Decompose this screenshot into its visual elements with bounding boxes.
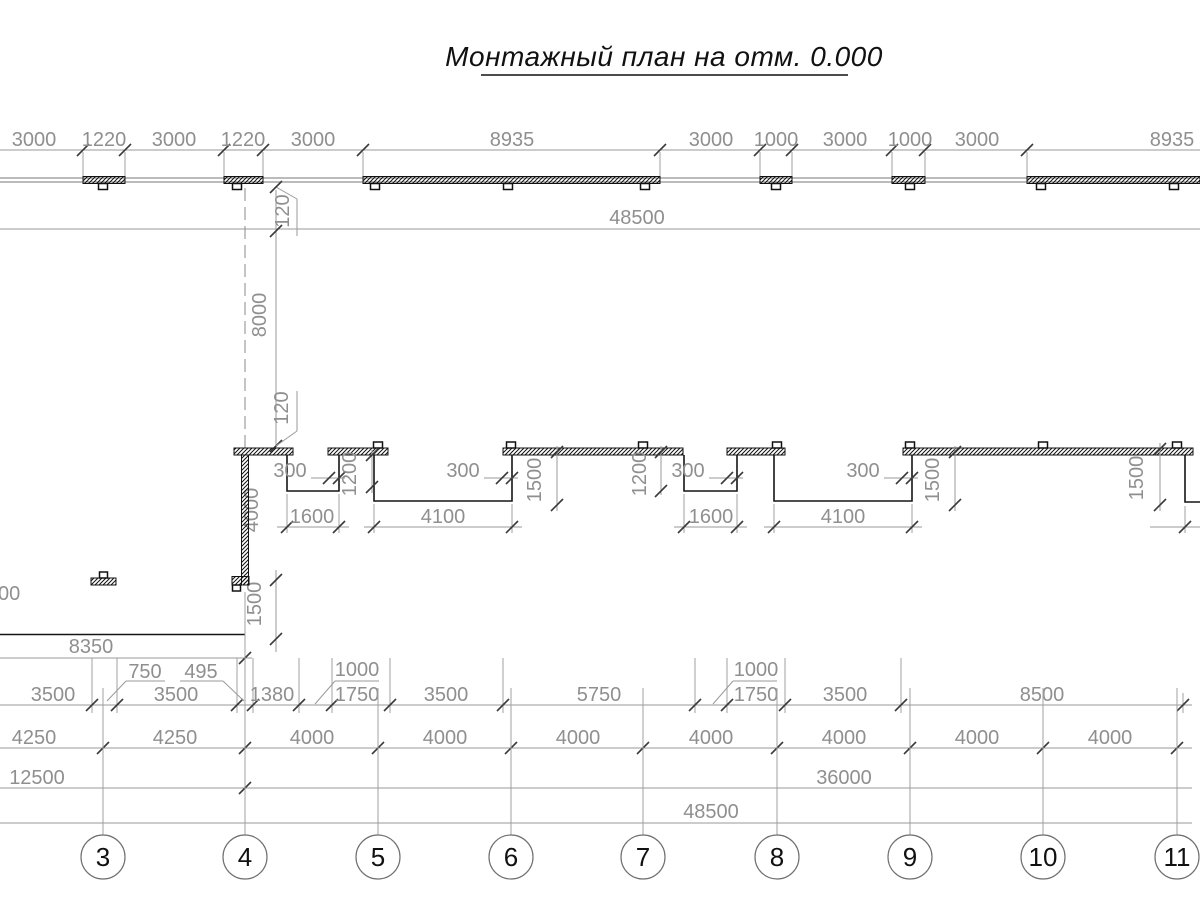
dim-label: 4000 — [822, 727, 867, 749]
dim-label: 3000 — [12, 129, 57, 151]
plan-drawing: Монтажный план на отм. 0.000 3000 1220 3… — [0, 0, 1200, 900]
dim-label-overlap: 300 — [273, 460, 306, 482]
bottom-row-2: 4250 4250 4000 4000 4000 4000 4000 4000 … — [0, 727, 1192, 754]
dim-label: 4000 — [955, 727, 1000, 749]
dim-label: 4000 — [556, 727, 601, 749]
left-block-dimensions: 00 8350 — [0, 583, 252, 664]
dim-label: 1380 — [250, 684, 295, 706]
dim-label: 1750 — [734, 684, 779, 706]
grid-bubble-label: 11 — [1164, 842, 1191, 872]
dim-label: 12500 — [9, 767, 65, 789]
grid-bubble-label: 9 — [903, 842, 917, 872]
dim-label-niche-d: 1500 — [922, 458, 944, 503]
drawing-canvas: Монтажный план на отм. 0.000 3000 1220 3… — [0, 0, 1200, 900]
dim-label-notch: 1500 — [244, 582, 266, 627]
dim-label-niche-w: 4100 — [421, 506, 466, 528]
middle-wall-column-tabs — [374, 442, 1182, 448]
overlap-300-callouts: 300 300 300 300 — [273, 460, 918, 484]
dim-label-niche-d: 1500 — [524, 458, 546, 503]
dim-label-niche-d: 1200 — [629, 452, 651, 497]
dim-label: 36000 — [816, 767, 872, 789]
dim-label: 1750 — [335, 684, 380, 706]
dim-label: 1000 — [754, 129, 799, 151]
dim-label-8350: 8350 — [69, 636, 114, 658]
dim-label-niche-w: 1600 — [689, 506, 734, 528]
dim-label: 3000 — [955, 129, 1000, 151]
dim-label-overlap: 300 — [846, 460, 879, 482]
dim-label: 8935 — [490, 129, 535, 151]
top-extension-lines — [83, 152, 1027, 176]
dim-label-overlap: 300 — [446, 460, 479, 482]
dim-label: 3000 — [689, 129, 734, 151]
grid-bubble-label: 4 — [238, 842, 252, 872]
dim-label-overlap: 300 — [671, 460, 704, 482]
top-wall-column-tabs — [99, 184, 1179, 190]
grid-bubble-label: 10 — [1029, 842, 1058, 872]
dim-label-niche-w: 1600 — [290, 506, 335, 528]
dim-label-offset-mid: 120 — [271, 391, 293, 424]
dim-label: 3000 — [291, 129, 336, 151]
niche-4100-outline-cut — [1185, 455, 1200, 502]
dim-label: 1000 — [734, 659, 779, 681]
dim-label-overall-bottom: 48500 — [683, 801, 739, 823]
dim-label: 1000 — [888, 129, 933, 151]
niche-width-dimensions: 1600 4100 1600 4100 — [277, 494, 1200, 533]
left-return-wall — [242, 455, 249, 585]
top-dimension-row: 3000 1220 3000 1220 3000 8935 3000 1000 … — [0, 129, 1200, 176]
dim-label: 3500 — [154, 684, 199, 706]
dim-label-niche-d: 1200 — [339, 452, 361, 497]
dim-label: 1000 — [335, 659, 380, 681]
grid-bubble-label: 3 — [96, 842, 110, 872]
grid-bubble-label: 8 — [770, 842, 784, 872]
dim-label: 495 — [184, 661, 217, 683]
dim-label-overall-top: 48500 — [609, 207, 665, 229]
overall-top-dimension: 48500 — [0, 207, 1200, 229]
dim-label-cut: 00 — [0, 583, 20, 605]
dim-label: 4250 — [12, 727, 57, 749]
dim-label: 4250 — [153, 727, 198, 749]
bottom-row-1: 3500 750 3500 495 1380 1000 1750 3500 57… — [0, 658, 1192, 713]
bottom-row-3: 12500 36000 — [0, 767, 1192, 794]
dim-label: 4000 — [1088, 727, 1133, 749]
top-wall — [0, 177, 1200, 190]
dim-label: 3500 — [823, 684, 868, 706]
grid-bubble-label: 5 — [371, 842, 385, 872]
dim-label-offset-top: 120 — [272, 194, 294, 227]
axis-3-panel — [91, 578, 116, 585]
dim-label: 3000 — [823, 129, 868, 151]
dim-label: 4000 — [689, 727, 734, 749]
dim-label: 8500 — [1020, 684, 1065, 706]
dim-label-niche-d: 1500 — [1126, 456, 1148, 501]
dim-label: 5750 — [577, 684, 622, 706]
left-return-wall-cap — [232, 577, 249, 586]
dim-label: 1220 — [82, 129, 127, 151]
grid-bubble-label: 7 — [636, 842, 650, 872]
dim-label: 750 — [128, 661, 161, 683]
dim-label: 3500 — [424, 684, 469, 706]
grid-bubble-label: 6 — [504, 842, 518, 872]
dim-label: 4000 — [290, 727, 335, 749]
dim-label: 1220 — [221, 129, 266, 151]
dim-label: 8935 — [1150, 129, 1195, 151]
dim-label: 3000 — [152, 129, 197, 151]
middle-wall — [0, 442, 1200, 635]
grid-axis-lines — [103, 592, 1177, 835]
dim-label-niche-w: 4100 — [821, 506, 866, 528]
overall-bottom-dimension: 48500 — [0, 801, 1192, 823]
page-title: Монтажный план на отм. 0.000 — [445, 41, 883, 72]
grid-bubbles: 3 4 5 6 7 8 9 10 11 — [81, 835, 1199, 879]
dim-label-depth: 8000 — [249, 293, 271, 338]
dim-label: 3500 — [31, 684, 76, 706]
drawing-title: Монтажный план на отм. 0.000 — [445, 41, 883, 75]
dim-label: 4000 — [423, 727, 468, 749]
